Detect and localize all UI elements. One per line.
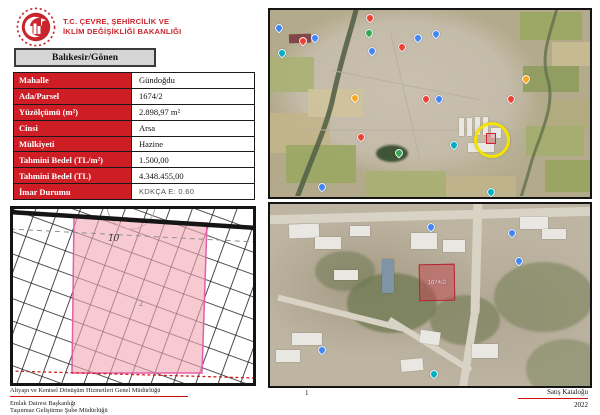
blue-map-pin-icon xyxy=(309,32,320,43)
table-row: Ada/Parsel1674/2 xyxy=(14,89,254,105)
cadastral-block-number: 10 xyxy=(108,232,120,244)
teal-map-pin-icon xyxy=(276,47,287,58)
table-row-label: Ada/Parsel xyxy=(14,89,132,104)
red-map-pin-icon xyxy=(355,132,366,143)
blue-map-pin-icon xyxy=(507,228,518,239)
detail-map-pins xyxy=(270,204,590,386)
red-map-pin-icon xyxy=(505,93,516,104)
parcel-info-table: MahalleGündoğduAda/Parsel1674/2Yüzölçümü… xyxy=(13,72,255,200)
blue-map-pin-icon xyxy=(316,182,327,193)
table-row-value: Gündoğdu xyxy=(132,73,254,88)
table-row: MahalleGündoğdu xyxy=(14,73,254,89)
table-row-value: 4.348.455,00 xyxy=(132,168,254,183)
blue-map-pin-icon xyxy=(366,45,377,56)
table-row-label: Tahmini Bedel (TL/m²) xyxy=(14,152,132,167)
cadastral-parcel-number: 2 xyxy=(139,299,143,308)
cadastral-map-drawing: 10 2 xyxy=(13,209,253,383)
table-row-value: KDKÇA E: 0.60 xyxy=(132,184,254,199)
table-row-label: Yüzölçümü (m²) xyxy=(14,105,132,120)
table-row: İmar DurumuKDKÇA E: 0.60 xyxy=(14,184,254,199)
table-row-value: Hazine xyxy=(132,137,254,152)
detail-satellite-map: 1674/2 xyxy=(268,202,592,388)
footer-red-rule-left xyxy=(10,396,188,398)
table-row-value: 1.500,00 xyxy=(132,152,254,167)
ministry-name-line2: İKLİM DEĞİŞİKLİĞİ BAKANLIĞI xyxy=(63,27,181,37)
teal-map-pin-icon xyxy=(486,186,497,197)
overview-satellite-map xyxy=(268,8,592,199)
blue-map-pin-icon xyxy=(433,93,444,104)
teal-map-pin-icon xyxy=(428,368,439,379)
catalog-year: 2022 xyxy=(518,401,588,409)
table-row: Yüzölçümü (m²)2.898,97 m² xyxy=(14,105,254,121)
red-map-pin-icon xyxy=(364,12,375,23)
table-row-label: Mülkiyeti xyxy=(14,137,132,152)
page-number: 1 xyxy=(305,389,309,397)
table-row-value: Arsa xyxy=(132,121,254,136)
overview-map-pins xyxy=(270,10,590,197)
table-row-value: 2.898,97 m² xyxy=(132,105,254,120)
location-label: Balıkesir/Gönen xyxy=(52,53,118,63)
ministry-name: T.C. ÇEVRE, ŞEHİRCİLİK VE İKLİM DEĞİŞİKL… xyxy=(63,17,181,37)
table-row: Tahmini Bedel (TL/m²)1.500,00 xyxy=(14,152,254,168)
blue-map-pin-icon xyxy=(425,221,436,232)
ministry-logo-icon xyxy=(16,7,56,47)
table-row-value: 1674/2 xyxy=(132,89,254,104)
green-map-pin-icon xyxy=(393,148,404,159)
location-box: Balıkesir/Gönen xyxy=(14,48,156,67)
table-row: CinsiArsa xyxy=(14,121,254,137)
footer-organization: Altyapı ve Kentsel Dönüşüm Hizmetleri Ge… xyxy=(10,387,188,414)
org-general-directorate: Altyapı ve Kentsel Dönüşüm Hizmetleri Ge… xyxy=(10,387,188,394)
footer-red-rule-right xyxy=(518,398,588,400)
ministry-header: T.C. ÇEVRE, ŞEHİRCİLİK VE İKLİM DEĞİŞİKL… xyxy=(16,7,181,47)
table-row-label: İmar Durumu xyxy=(14,184,132,199)
org-branch: Taşınmaz Geliştirme Şube Müdürlüğü xyxy=(10,407,188,414)
red-map-pin-icon xyxy=(420,93,431,104)
orange-map-pin-icon xyxy=(349,92,360,103)
table-row: Tahmini Bedel (TL)4.348.455,00 xyxy=(14,168,254,184)
orange-map-pin-icon xyxy=(520,73,531,84)
cadastral-parcel-highlight xyxy=(72,217,207,373)
blue-map-pin-icon xyxy=(316,344,327,355)
blue-map-pin-icon xyxy=(274,22,285,33)
table-row-label: Mahalle xyxy=(14,73,132,88)
catalog-footer: Satış Kataloğu 2022 xyxy=(518,388,588,409)
ministry-name-line1: T.C. ÇEVRE, ŞEHİRCİLİK VE xyxy=(63,17,181,27)
teal-map-pin-icon xyxy=(448,140,459,151)
table-row: MülkiyetiHazine xyxy=(14,137,254,153)
blue-map-pin-icon xyxy=(430,28,441,39)
org-department: Emlak Dairesi Başkanlığı xyxy=(10,400,188,407)
blue-map-pin-icon xyxy=(412,32,423,43)
table-row-label: Cinsi xyxy=(14,121,132,136)
catalog-page: T.C. ÇEVRE, ŞEHİRCİLİK VE İKLİM DEĞİŞİKL… xyxy=(0,0,600,415)
blue-map-pin-icon xyxy=(513,255,524,266)
catalog-label: Satış Kataloğu xyxy=(518,388,588,396)
red-map-pin-icon xyxy=(396,41,407,52)
cadastral-map: 10 2 xyxy=(10,206,256,386)
table-row-label: Tahmini Bedel (TL) xyxy=(14,168,132,183)
green-map-pin-icon xyxy=(363,27,374,38)
red-map-pin-icon xyxy=(298,35,309,46)
